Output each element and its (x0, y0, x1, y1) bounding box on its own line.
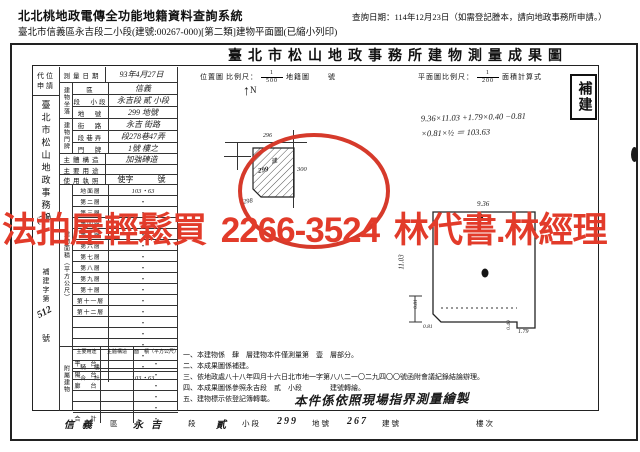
street-label: 街 路 (73, 119, 109, 130)
floor-area-row-value: ・ (109, 273, 177, 283)
cadastral-map-label: 地籍圖 (286, 72, 310, 82)
area-calc-title: 面積計算式 (502, 72, 542, 82)
table-group-location: 建物坐落 區 信義 段 小段 永吉段 貳 小段 地 號 299 地號 (60, 82, 177, 118)
lane-value: 段278巷47弄 (109, 131, 177, 142)
dimension-chamfer-vertical: 0.81 (413, 299, 419, 309)
annex-row-area: ・ (134, 369, 178, 379)
scale-denominator: 500 (266, 78, 278, 85)
district-value: 信義 (109, 83, 177, 94)
annex-row-structure (101, 358, 134, 368)
annex-row: ・ (73, 401, 178, 412)
field-survey-note: 本件係依照現場指界測量繪製 (294, 387, 470, 409)
section-value: 永吉段 貳 小段 (109, 95, 177, 106)
annex-header-row: 主要用途 主體構造 面 積（平方公尺） (73, 347, 178, 358)
annex-row: 廊 台・ (73, 379, 178, 390)
scale-prefix: 比例尺： (226, 72, 258, 82)
query-date: 查詢日期：114年12月23日（如需登記謄本，請向地政事務所申請。） (352, 11, 607, 23)
structure-label: 主體構造 (60, 154, 106, 164)
floor-area-row-value: 103・63 (109, 185, 177, 195)
district-label: 區 (73, 83, 109, 94)
location-scale: 比例尺： 1 500 地籍圖 號 (226, 70, 336, 84)
floor-area-row-value: ・ (109, 328, 177, 338)
street-value: 永吉 街路 (109, 119, 177, 130)
annex-row-area: ・ (134, 391, 178, 401)
note-line-2: 二、本成果圖係補建。 (183, 361, 583, 372)
usage-label: 主要用途 (60, 165, 106, 174)
floor-area-row: ・ (73, 327, 177, 338)
plan-scale-numerator: 1 (477, 70, 499, 78)
strip-district-label: 區 (110, 418, 120, 429)
parcel-number-296: 296 (263, 133, 272, 139)
floor-area-row-value: ・ (109, 317, 177, 327)
annex-row-use (73, 391, 101, 401)
floor-area-row-label (73, 328, 109, 338)
subrogation-label: 代位申請 (33, 67, 59, 96)
floor-area-row-label: 第十層 (73, 284, 109, 294)
strip-section-label: 段 (188, 418, 198, 429)
floor-area-row-value: ・ (109, 262, 177, 272)
scale-numerator: 1 (261, 70, 283, 78)
table-row-license: 使用執照 使字 號 (60, 174, 177, 184)
annex-row-use (73, 402, 101, 412)
floor-area-row-label: 地面層 (73, 185, 109, 195)
floor-area-row: 第十二層・ (73, 305, 177, 316)
table-group-annex: 附屬建物 主要用途 主體構造 面 積（平方公尺） 平 台・陽 台・廊 台・・・合… (60, 346, 177, 411)
annex-group-label: 附屬建物 (60, 347, 73, 411)
floor-area-row: 第八層・ (73, 261, 177, 272)
floor-area-row-label: 第八層 (73, 262, 109, 272)
location-group-label: 建物坐落 (60, 83, 73, 118)
dimension-left: 11.03 (398, 254, 406, 269)
survey-date-label: 測量日期 (60, 67, 106, 82)
annex-row-area: ・ (134, 402, 178, 412)
floor-area-row-label: 第十二層 (73, 306, 109, 316)
area-calculation-line1: 9.36×11.03 +1.79×0.40 −0.81 (421, 109, 527, 127)
north-letter: N (250, 85, 257, 99)
scanned-document-page: 北北桃地政電傳全功能地籍資料查詢系統 查詢日期：114年12月23日（如需登記謄… (0, 0, 640, 452)
table-row-survey-date: 測量日期 93年4月27日 (60, 67, 177, 82)
strip-district-value: 信義 (64, 416, 100, 431)
floor-area-row: 第九層・ (73, 272, 177, 283)
structure-value: 加強磚造 (106, 154, 177, 164)
table-row-usage: 主要用途 (60, 164, 177, 174)
license-label: 使用執照 (60, 175, 106, 184)
floor-area-row: ・ (73, 316, 177, 327)
survey-cross-icon (237, 143, 238, 170)
strip-building-value: 267 (347, 416, 368, 427)
annex-row: 陽 台・ (73, 368, 178, 379)
area-calculation-line2: ×0.81×½ ＝ 103.63 (421, 124, 527, 142)
floor-area-row: 第十一層・ (73, 294, 177, 305)
section-label: 段 小段 (73, 95, 109, 106)
rebuild-stamp: 補建 (570, 74, 597, 120)
table-row-parcel: 地 號 299 地號 (73, 106, 177, 118)
annex-row-area: ・ (134, 358, 178, 368)
table-row-street: 街 路 永吉 街路 (73, 119, 177, 130)
area-calculation: 9.36×11.03 +1.79×0.40 −0.81 ×0.81×½ ＝ 10… (421, 109, 527, 142)
annex-header-area: 面 積（平方公尺） (134, 347, 178, 358)
annex-row-area: ・ (134, 380, 178, 390)
parcel-value: 299 地號 (109, 107, 177, 118)
north-arrow-glyph: ↑ (243, 85, 250, 99)
annex-row: ・ (73, 390, 178, 401)
dimension-chamfer-horizontal: 0.81 (423, 324, 433, 330)
table-row-structure: 主體構造 加強磚造 (60, 153, 177, 164)
dimension-notch-horizontal: 1.79 (518, 329, 529, 335)
annex-row-structure (101, 380, 134, 390)
annex-row-use: 廊 台 (73, 380, 101, 390)
license-value: 使字 號 (106, 175, 177, 184)
rebuild-number-value: 512 (35, 304, 53, 321)
strip-parcel-label: 地號 (312, 418, 331, 429)
location-scale-fraction: 1 500 (261, 70, 283, 84)
parcel-label: 地 號 (73, 107, 109, 118)
strip-parcel-value: 299 (277, 416, 298, 427)
dimension-notch-vertical: 0.40 (506, 320, 512, 330)
table-row-section: 段 小段 永吉段 貳 小段 (73, 94, 177, 106)
system-title: 北北桃地政電傳全功能地籍資料查詢系統 (18, 7, 243, 24)
strip-street-value: 永吉 (133, 416, 169, 431)
floor-area-row: 第十層・ (73, 283, 177, 294)
strip-subsection-value: 貳 (216, 416, 226, 431)
floor-area-row-label: 第九層 (73, 273, 109, 283)
floor-area-row-label (73, 317, 109, 327)
annex-row-structure (101, 369, 134, 379)
north-arrow-icon: ↑ N (243, 85, 257, 99)
floor-area-row-value: ・ (109, 306, 177, 316)
floor-area-row: 地面層103・63 (73, 185, 177, 195)
annex-row-use: 平 台 (73, 358, 101, 368)
floor-area-row-value: ・ (109, 295, 177, 305)
location-map-label: 位置圖 (200, 72, 224, 82)
document-path: 臺北市信義區永吉段二小段(建號:00267-000)[第二類]建物平面圖(已縮小… (18, 24, 337, 38)
annex-row: 平 台・ (73, 358, 178, 368)
binding-mark (631, 147, 638, 162)
note-line-1: 一、本建物係 肆 層建物本件僅測量第 壹 層部分。 (183, 350, 583, 361)
plan-scale-fraction: 1 200 (477, 70, 499, 84)
annex-row-use: 陽 台 (73, 369, 101, 379)
plan-scale-prefix: 平面圖比例尺： (418, 72, 474, 82)
survey-date-value: 93年4月27日 (106, 67, 177, 82)
annex-row-structure (101, 402, 134, 412)
cadastral-no-label: 號 (328, 72, 336, 82)
table-row-district: 區 信義 (73, 83, 177, 94)
address-group-label: 建物門牌 (60, 119, 73, 153)
plan-scale-denominator: 200 (482, 78, 494, 85)
page-title: 臺北市松山地政事務所建物測量成果圖 (228, 45, 568, 65)
strip-building-label: 建號 (382, 418, 401, 429)
note-line-3: 三、依地政處八十八年四月十六日北市地一字第八八二一〇二九四〇〇號函附會議紀錄結論… (183, 372, 583, 383)
table-group-address: 建物門牌 街 路 永吉 街路 段巷弄 段278巷47弄 門 牌 1號 樓之 (60, 118, 177, 153)
usage-value (106, 165, 177, 174)
annex-header-use: 主要用途 (73, 347, 101, 358)
strip-floor-label: 樓次 (476, 418, 495, 429)
strip-subsection-label: 小段 (242, 418, 261, 429)
plan-scale: 平面圖比例尺： 1 200 面積計算式 (418, 70, 542, 84)
table-row-lane: 段巷弄 段278巷47弄 (73, 130, 177, 142)
rebuild-number-label: 補建字第 (41, 268, 51, 304)
lane-label: 段巷弄 (73, 131, 109, 142)
annex-header-structure: 主體構造 (101, 347, 134, 358)
overlay-ad-text: 法拍屋輕鬆買 2266-3524 林代書.林經理 (2, 202, 607, 253)
floor-area-row-value: ・ (109, 284, 177, 294)
annex-row-structure (101, 391, 134, 401)
rebuild-number-suffix: 號 (33, 333, 59, 344)
floor-area-row-label: 第十一層 (73, 295, 109, 305)
